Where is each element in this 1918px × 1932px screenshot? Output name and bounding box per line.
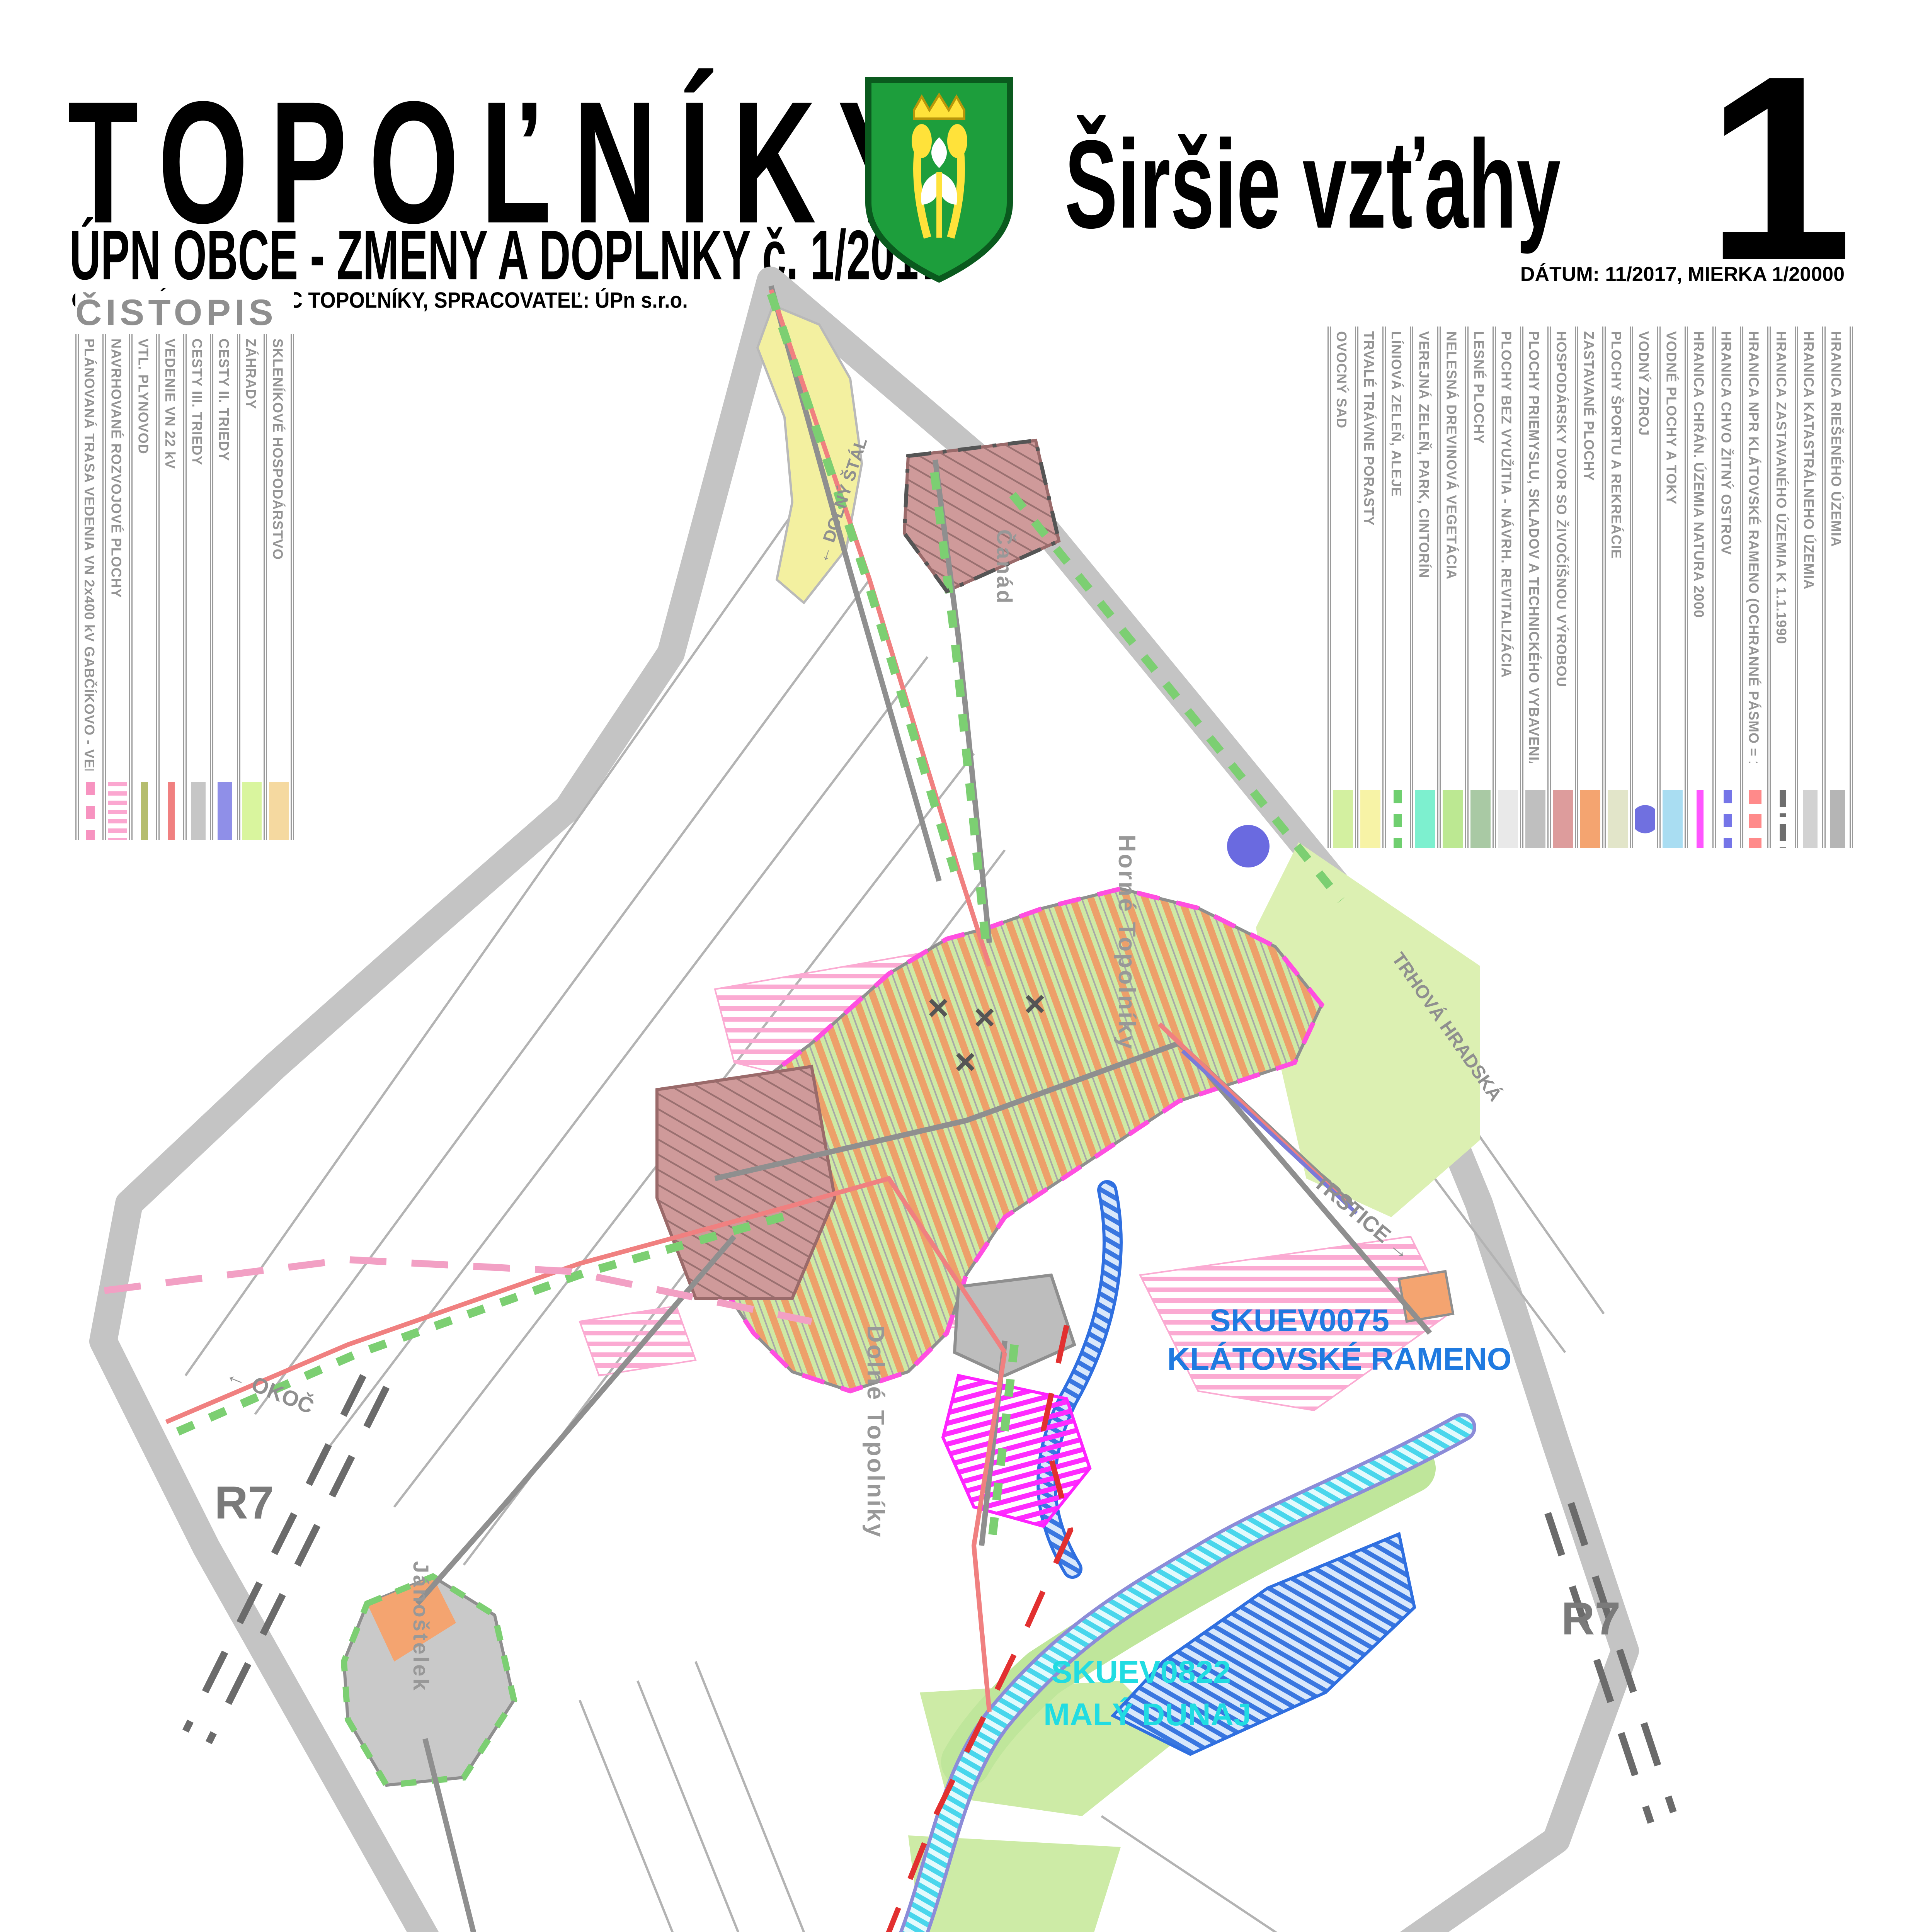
- legend-column-label: HRANICA NPR KLÁTOVSKÉ RAMENO (OCHRANNÉ P…: [1743, 327, 1762, 763]
- legend-cistopis: ČISTOPIS PLÁNOVANÁ TRASA VEDENIA VN 2x40…: [75, 292, 294, 848]
- legend-column-label: NAVRHOVANÉ ROZVOJOVÉ PLOCHY: [106, 334, 124, 598]
- legend-column: HRANICA NPR KLÁTOVSKÉ RAMENO (OCHRANNÉ P…: [1740, 327, 1767, 848]
- legend-column: OVOCNÝ SAD: [1327, 327, 1355, 848]
- legend-column: VEREJNÁ ZELEŇ, PARK, CINTORÍN: [1410, 327, 1437, 848]
- map-label-skuev0822: SKUEV0822: [1051, 1655, 1231, 1690]
- legend-column-label: CESTY III. TRIEDY: [187, 334, 205, 465]
- legend-column-label: PLOCHY PRIEMYSLU, SKLADOV A TECHNICKÉHO …: [1523, 327, 1542, 763]
- map-label-skuev0075: SKUEV0075: [1210, 1303, 1389, 1338]
- legend-column-swatch: [1635, 790, 1655, 848]
- svg-text:×: ×: [928, 987, 949, 1028]
- legend-column-label: OVOCNÝ SAD: [1331, 327, 1350, 429]
- legend-column: HRANICA ZASTAVANÉHO ÚZEMIA K 1.1.1990: [1767, 327, 1795, 848]
- legend-column: VEDENIE VN 22 kV: [156, 334, 183, 840]
- legend-column-swatch: [1690, 790, 1710, 848]
- legend-column-label: VODNÉ PLOCHY A TOKY: [1661, 327, 1679, 505]
- legend-column: NAVRHOVANÉ ROZVOJOVÉ PLOCHY: [102, 334, 129, 840]
- legend-column: LÍNIOVÁ ZELEŇ, ALEJE: [1382, 327, 1410, 848]
- legend-column-swatch: [1663, 790, 1683, 848]
- legend-column-label: PLOCHY ŠPORTU A REKREÁCIE: [1606, 327, 1624, 559]
- legend-column: PLOCHY ŠPORTU A REKREÁCIE: [1602, 327, 1630, 848]
- legend-column: LESNÉ PLOCHY: [1465, 327, 1493, 848]
- legend-column: HOSPODÁRSKY DVOR SO ŽIVOČÍŠNOU VÝROBOU: [1547, 327, 1575, 848]
- area-orange-trstice-edge: [1399, 1271, 1453, 1321]
- legend-column: PLOCHY BEZ VYUŽITIA - NÁVRH. REVITALIZÁC…: [1493, 327, 1520, 848]
- legend-column: TRVALÉ TRÁVNE PORASTY: [1355, 327, 1382, 848]
- legend-column-swatch: [1828, 790, 1848, 848]
- map-canvas: × × × × N Horné Topolníky Dolné Topolník…: [0, 0, 1918, 1932]
- legend-column-label: HRANICA CHVO ŽITNÝ OSTROV: [1716, 327, 1734, 555]
- legend-column-swatch: [242, 782, 262, 840]
- legend-column-swatch: [1608, 790, 1628, 848]
- legend-column: CESTY II. TRIEDY: [210, 334, 237, 840]
- legend-column: ZÁHRADY: [237, 334, 264, 840]
- legend-column: SKLENÍKOVÉ HOSPODÁRSTVO: [264, 334, 291, 840]
- legend-column-swatch: [162, 782, 181, 840]
- legend-column-swatch: [269, 782, 289, 840]
- legend-column-swatch: [1360, 790, 1380, 848]
- legend-column-label: PLOCHY BEZ VYUŽITIA - NÁVRH. REVITALIZÁC…: [1496, 327, 1515, 678]
- legend-column-label: LÍNIOVÁ ZELEŇ, ALEJE: [1386, 327, 1404, 497]
- legend-column-label: PLÁNOVANÁ TRASA VEDENIA VN 2x400 kV GABČ…: [79, 334, 97, 770]
- area-farm-west: [657, 1066, 835, 1298]
- legend-column-label: ZASTAVANÉ PLOCHY: [1578, 327, 1597, 481]
- legend-column-swatch: [1745, 790, 1765, 848]
- vodny-zdroj-dot: [1227, 825, 1270, 867]
- legend-column: VTL. PLYNOVOD: [129, 334, 156, 840]
- map-label-horne-topolniky: Horné Topolníky: [1113, 835, 1140, 1051]
- legend-column-swatch: [1773, 790, 1793, 848]
- map-label-r7-east: R7: [1561, 1593, 1620, 1645]
- map-label-canad: Čanád: [992, 529, 1017, 605]
- legend-column: NELESNÁ DREVINOVÁ VEGETÁCIA: [1437, 327, 1465, 848]
- legend-column-swatch: [1388, 790, 1408, 848]
- svg-text:×: ×: [974, 997, 995, 1038]
- legend-column-swatch: [108, 782, 128, 840]
- main-legend-columns: OVOCNÝ SAD TRVALÉ TRÁVNE PORASTY LÍNIOVÁ…: [1327, 327, 1853, 848]
- legend-column: PLÁNOVANÁ TRASA VEDENIA VN 2x400 kV GABČ…: [75, 334, 102, 840]
- legend-column-swatch: [134, 782, 154, 840]
- legend-column-swatch: [1498, 790, 1518, 848]
- legend-column-swatch: [1415, 790, 1435, 848]
- legend-column: HRANICA CHRÁN. ÚZEMIA NATURA 2000: [1685, 327, 1712, 848]
- legend-column-label: HRANICA CHRÁN. ÚZEMIA NATURA 2000: [1688, 327, 1707, 618]
- legend-column: ZASTAVANÉ PLOCHY: [1575, 327, 1602, 848]
- legend-column-label: SKLENÍKOVÉ HOSPODÁRSTVO: [267, 334, 286, 560]
- legend-column-swatch: [1718, 790, 1738, 848]
- legend-column-label: HRANICA ZASTAVANÉHO ÚZEMIA K 1.1.1990: [1771, 327, 1789, 644]
- legend-column-label: VODNÝ ZDROJ: [1633, 327, 1652, 436]
- legend-column: HRANICA KATASTRÁLNEHO ÚZEMIA: [1795, 327, 1822, 848]
- legend-column-swatch: [189, 782, 208, 840]
- legend-column-swatch: [1443, 790, 1463, 848]
- legend-column-swatch: [1525, 790, 1545, 848]
- legend-column: VODNÝ ZDROJ: [1630, 327, 1657, 848]
- legend-column-swatch: [1333, 790, 1353, 848]
- legend-column: CESTY III. TRIEDY: [183, 334, 210, 840]
- map-label-janostelek: Jánoštelek: [409, 1561, 433, 1692]
- legend-column-label: ZÁHRADY: [240, 334, 259, 409]
- svg-text:×: ×: [1024, 983, 1045, 1024]
- legend-column-label: HOSPODÁRSKY DVOR SO ŽIVOČÍŠNOU VÝROBOU: [1551, 327, 1569, 687]
- legend-column-label: LESNÉ PLOCHY: [1469, 327, 1487, 444]
- legend-column: HRANICA CHVO ŽITNÝ OSTROV: [1712, 327, 1740, 848]
- legend-column-label: TRVALÉ TRÁVNE PORASTY: [1358, 327, 1377, 526]
- legend-column-swatch: [1470, 790, 1491, 848]
- legend-column-label: VTL. PLYNOVOD: [133, 334, 151, 454]
- map-label-dolne-topolniky: Dolné Topolníky: [862, 1325, 889, 1539]
- svg-text:×: ×: [955, 1041, 976, 1082]
- legend-column-label: VEDENIE VN 22 kV: [160, 334, 178, 469]
- legend-main: OVOCNÝ SAD TRVALÉ TRÁVNE PORASTY LÍNIOVÁ…: [1327, 327, 1853, 848]
- legend-column: PLOCHY PRIEMYSLU, SKLADOV A TECHNICKÉHO …: [1520, 327, 1547, 848]
- legend-column-swatch: [1580, 790, 1600, 848]
- map-label-skuev0075-2: KLÁTOVSKÉ RAMENO: [1167, 1342, 1511, 1377]
- map-label-r7-west: R7: [214, 1477, 274, 1529]
- legend-column-swatch: [1800, 790, 1820, 848]
- legend-column-label: HRANICA RIEŠENÉHO ÚZEMIA: [1826, 327, 1844, 547]
- legend-column-label: HRANICA KATASTRÁLNEHO ÚZEMIA: [1798, 327, 1817, 590]
- legend-column-label: VEREJNÁ ZELEŇ, PARK, CINTORÍN: [1413, 327, 1432, 578]
- legend-column: VODNÉ PLOCHY A TOKY: [1657, 327, 1685, 848]
- legend-column-label: CESTY II. TRIEDY: [213, 334, 232, 461]
- legend-column: HRANICA RIEŠENÉHO ÚZEMIA: [1822, 327, 1850, 848]
- legend-cistopis-title: ČISTOPIS: [75, 292, 294, 334]
- legend-column-label: NELESNÁ DREVINOVÁ VEGETÁCIA: [1441, 327, 1459, 580]
- legend-column-swatch: [215, 782, 235, 840]
- legend-column-swatch: [81, 782, 100, 840]
- map-label-skuev0822-2: MALÝ DUNAJ: [1043, 1697, 1251, 1732]
- cistopis-columns: PLÁNOVANÁ TRASA VEDENIA VN 2x400 kV GABČ…: [75, 334, 294, 840]
- legend-column-swatch: [1553, 790, 1573, 848]
